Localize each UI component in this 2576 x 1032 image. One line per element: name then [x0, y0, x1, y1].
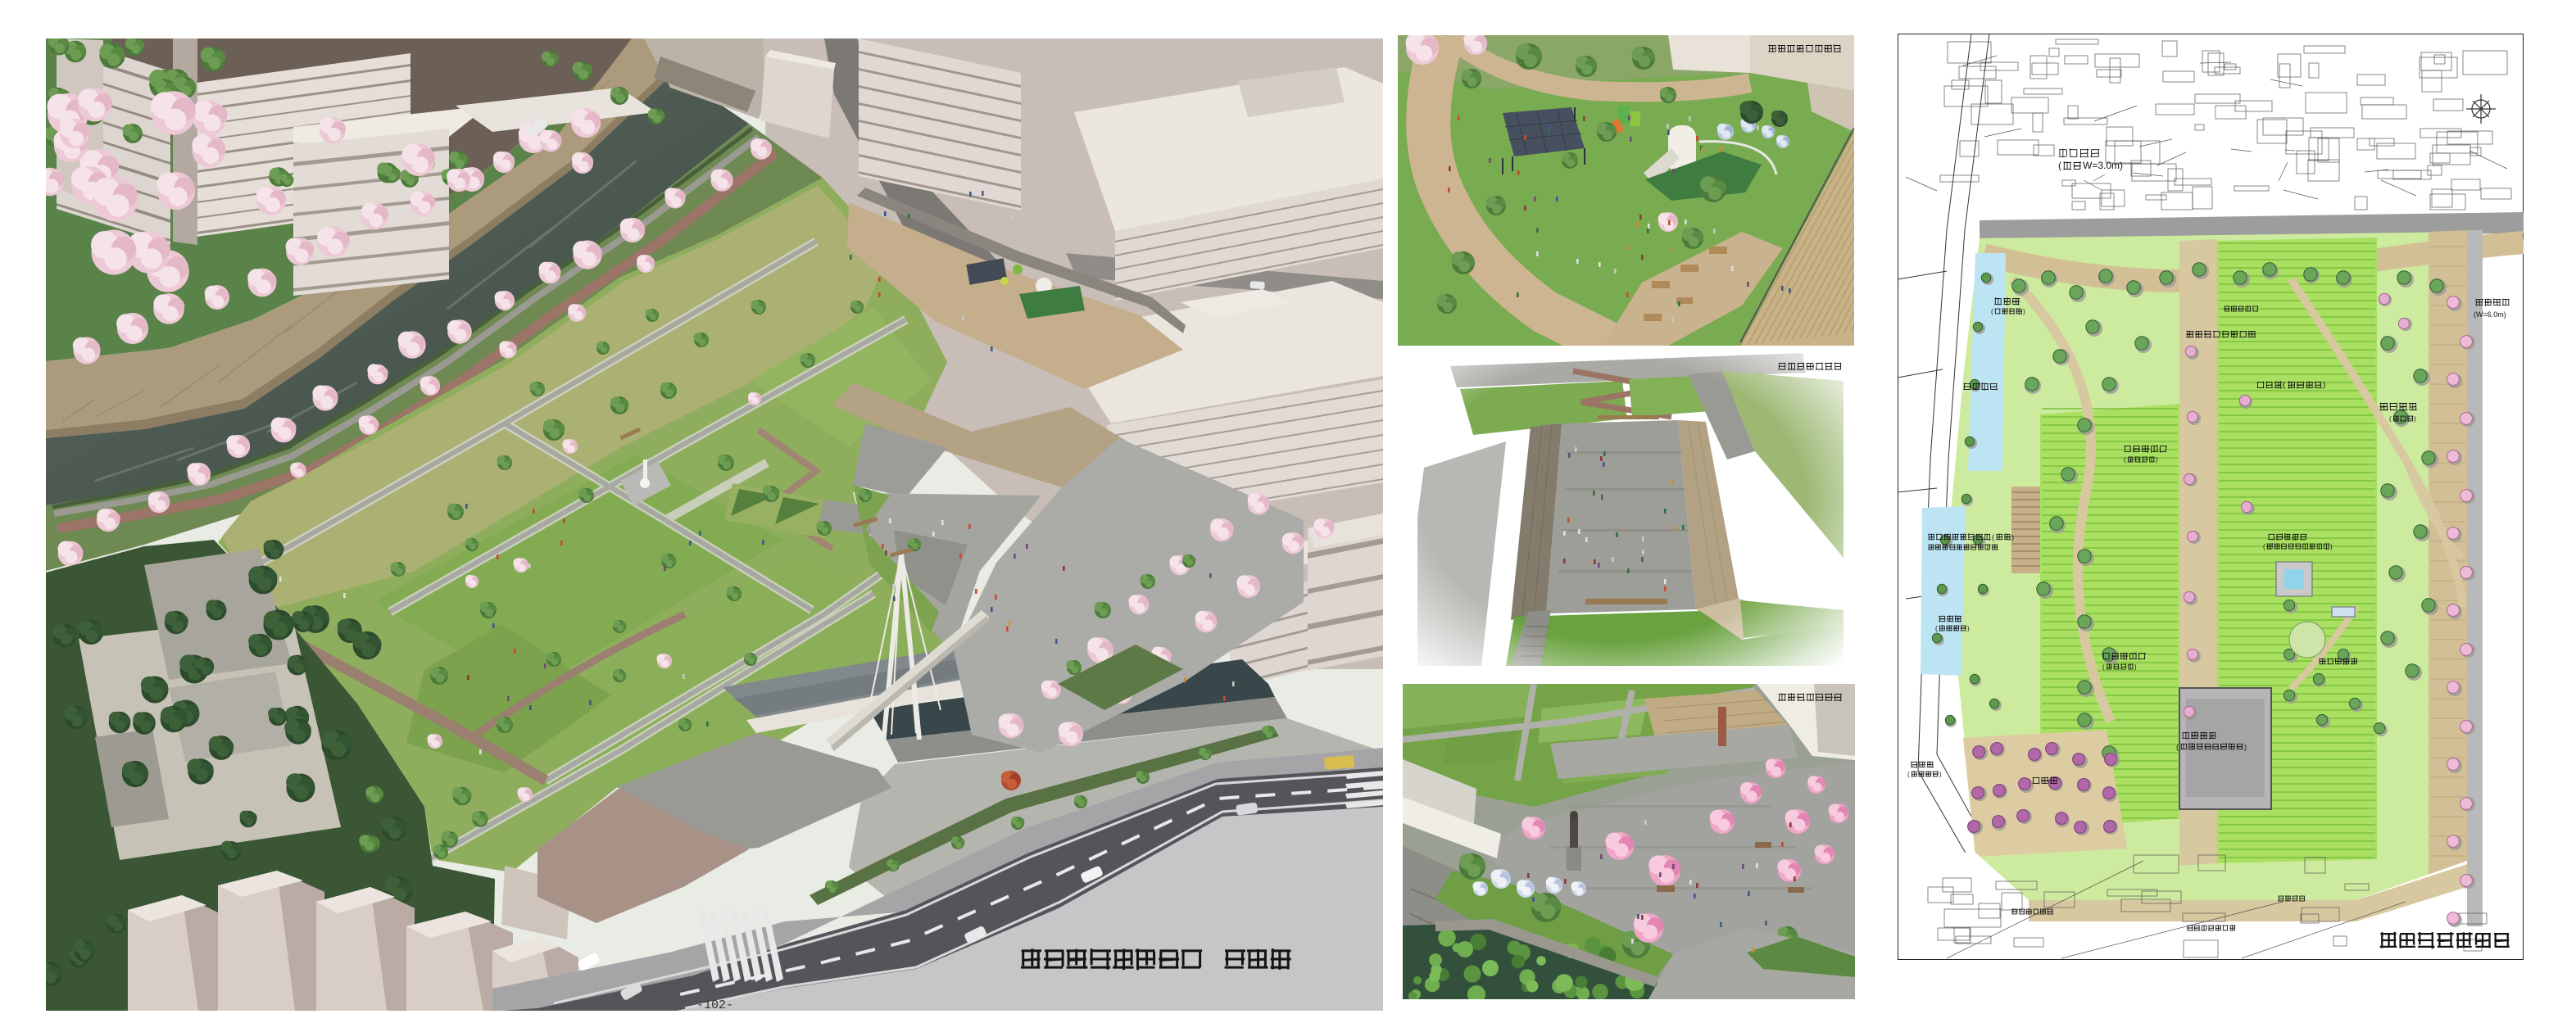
svg-text:): )	[1939, 771, 1942, 778]
svg-text:(: (	[1935, 625, 1938, 632]
svg-text:): )	[2414, 415, 2416, 423]
svg-text:(: (	[2389, 415, 2392, 423]
svg-text:(: (	[2058, 160, 2061, 171]
svg-text:): )	[2023, 308, 2025, 315]
svg-text:): )	[2011, 533, 2014, 541]
svg-text:(: (	[1992, 533, 1994, 541]
svg-text:): )	[2134, 663, 2137, 671]
svg-text:(: (	[2102, 663, 2105, 671]
svg-text:-102-: -102-	[696, 998, 733, 1011]
svg-text:): )	[1967, 625, 1970, 632]
svg-text:(W=6.0m): (W=6.0m)	[2474, 310, 2506, 319]
svg-text:(: (	[2176, 743, 2179, 751]
svg-text:): )	[2244, 743, 2247, 751]
svg-text:(: (	[1907, 771, 1910, 778]
svg-text:): )	[2330, 543, 2333, 550]
svg-text:): )	[2323, 381, 2325, 390]
svg-text:(: (	[1991, 308, 1993, 315]
svg-text:(: (	[2263, 543, 2265, 550]
svg-text:): )	[2156, 456, 2158, 464]
svg-text:(: (	[2124, 456, 2126, 464]
svg-text:W=3.0m): W=3.0m)	[2083, 160, 2123, 171]
